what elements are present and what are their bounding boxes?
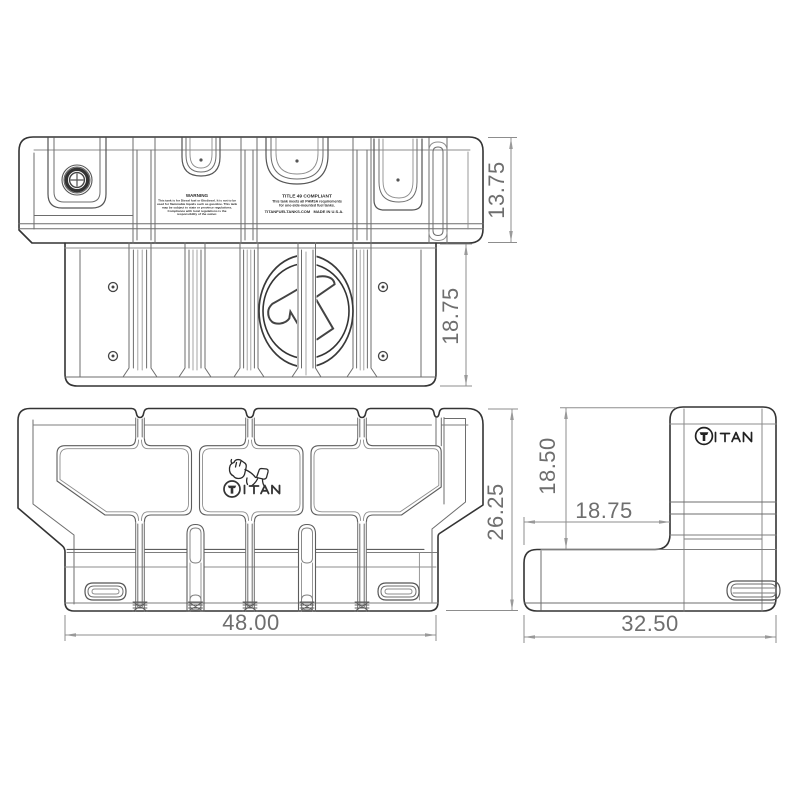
svg-text:26.25: 26.25 [483,483,508,541]
svg-text:responsibility of the owner.: responsibility of the owner. [177,212,217,216]
svg-text:WARNING: WARNING [186,193,209,198]
svg-text:TITANFUELTANKS.COM MADE IN U: TITANFUELTANKS.COM MADE IN U.S.A. [265,209,344,214]
svg-text:18.75: 18.75 [575,498,633,523]
svg-text:TITLE 49 COMPLIANT: TITLE 49 COMPLIANT [282,194,332,200]
svg-text:18.75: 18.75 [438,287,463,345]
svg-text:for one-side-mounted fuel tank: for one-side-mounted fuel tanks. [279,204,335,208]
svg-text:13.75: 13.75 [484,161,509,219]
svg-text:48.00: 48.00 [222,610,280,635]
svg-text:18.50: 18.50 [535,437,560,495]
svg-text:32.50: 32.50 [621,611,679,636]
